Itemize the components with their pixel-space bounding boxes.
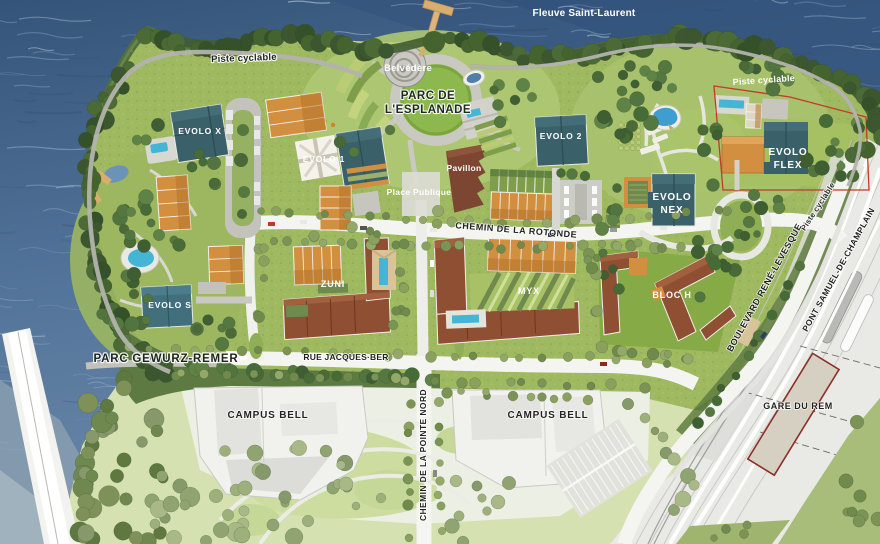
- svg-text:RUE JACQUES·BER: RUE JACQUES·BER: [303, 352, 388, 362]
- svg-text:BLOC H: BLOC H: [652, 290, 691, 300]
- svg-text:EVOLO 1: EVOLO 1: [303, 154, 345, 164]
- svg-text:NEX: NEX: [661, 205, 684, 216]
- svg-text:EVOLO S: EVOLO S: [148, 300, 191, 310]
- svg-text:EVOLO: EVOLO: [768, 147, 807, 158]
- svg-text:CHEMIN DE LA POINTE NORD: CHEMIN DE LA POINTE NORD: [418, 389, 428, 521]
- svg-text:EVOLO X: EVOLO X: [178, 126, 221, 136]
- svg-text:Piste cyclable: Piste cyclable: [211, 52, 277, 65]
- svg-text:L'ESPLANADE: L'ESPLANADE: [385, 104, 471, 116]
- svg-text:MYX: MYX: [518, 286, 540, 296]
- svg-text:EVOLO 2: EVOLO 2: [540, 131, 582, 141]
- svg-text:CAMPUS BELL: CAMPUS BELL: [507, 410, 588, 421]
- svg-text:PARC DE: PARC DE: [401, 90, 455, 102]
- svg-text:EVOLO: EVOLO: [652, 192, 691, 203]
- svg-text:CAMPUS BELL: CAMPUS BELL: [227, 410, 308, 421]
- svg-text:GARE DU REM: GARE DU REM: [763, 401, 833, 411]
- svg-text:PARC GEWURZ-REMER: PARC GEWURZ-REMER: [94, 353, 239, 365]
- svg-text:FLEX: FLEX: [774, 160, 803, 171]
- svg-text:Belvédère: Belvédère: [384, 63, 432, 74]
- svg-text:Fleuve Saint-Laurent: Fleuve Saint-Laurent: [533, 8, 636, 19]
- svg-text:Place Publique: Place Publique: [387, 187, 452, 197]
- svg-text:Pavillon: Pavillon: [447, 163, 482, 173]
- svg-text:ZUNI: ZUNI: [321, 279, 345, 289]
